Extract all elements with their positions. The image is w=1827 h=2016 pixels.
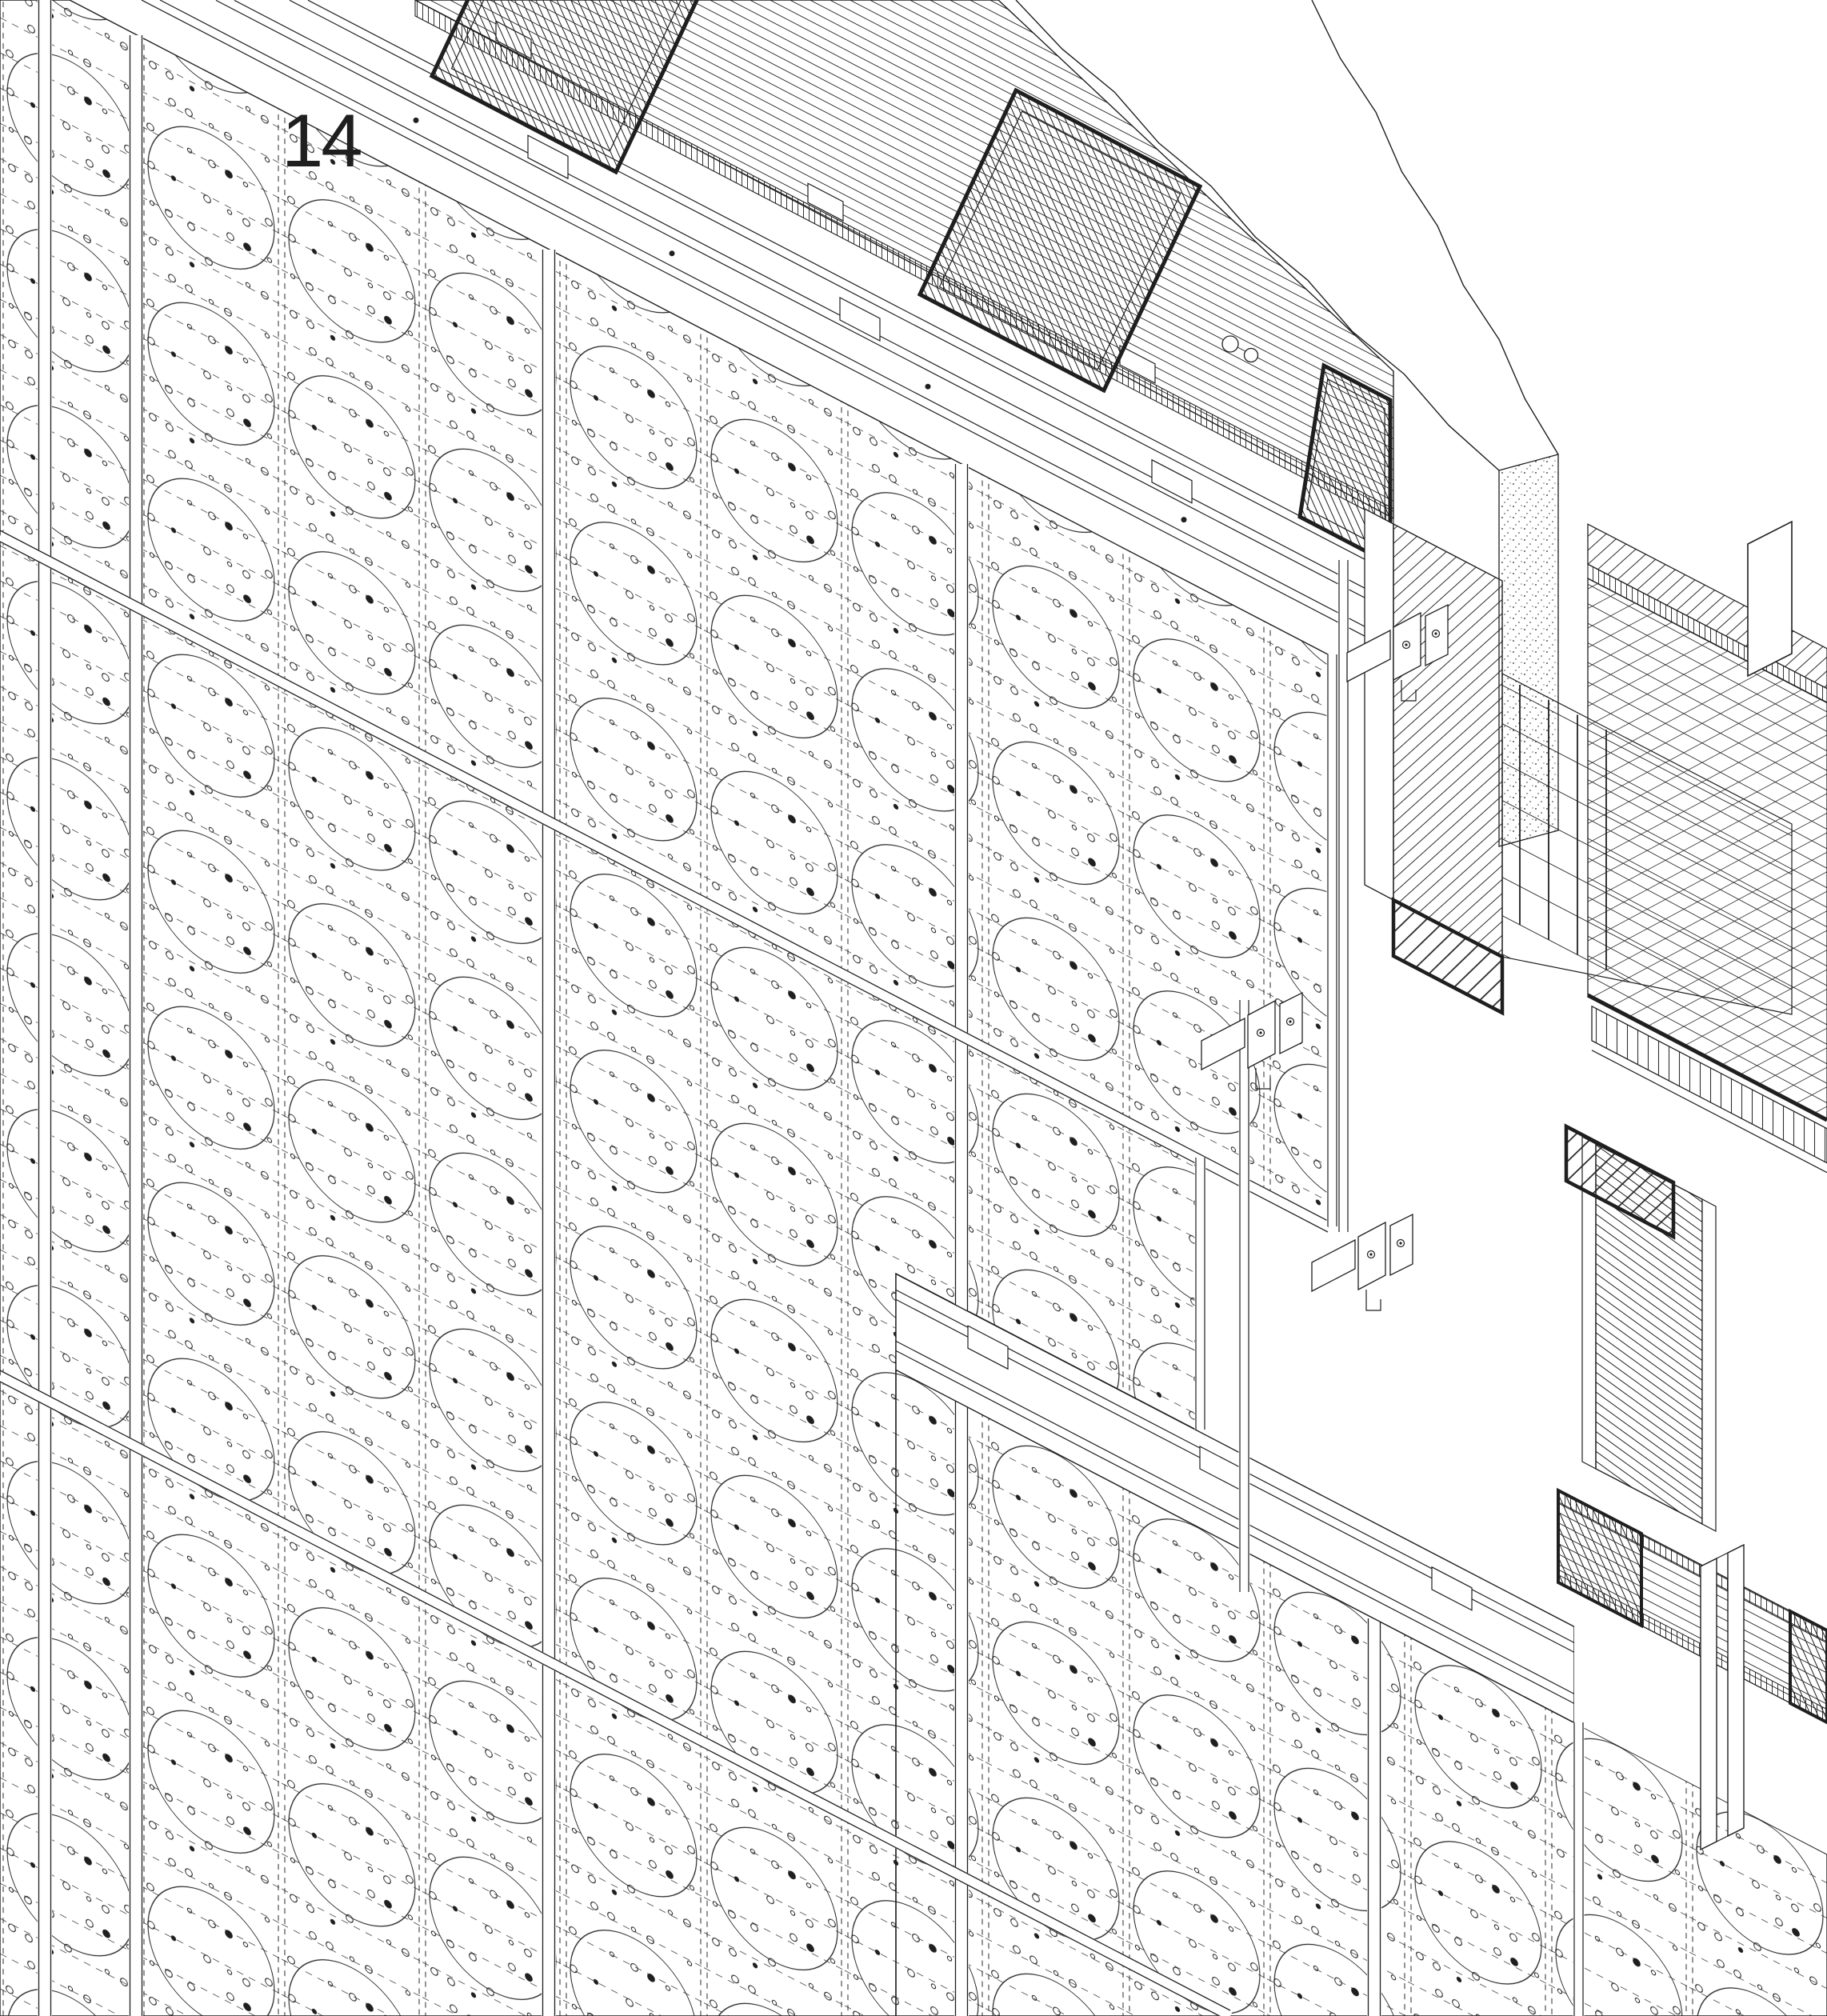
parapet-slab — [1748, 522, 1792, 676]
soffit-lintel — [1558, 1490, 1641, 1626]
soffit-lintel — [1790, 1611, 1827, 1722]
rail-screw — [1181, 517, 1187, 522]
wall-reveal-trim — [1365, 509, 1393, 900]
bracket-part — [1312, 1240, 1355, 1291]
bolt-icon — [1434, 632, 1437, 634]
mullion-channel — [1701, 1558, 1717, 1850]
bracket-hook — [1366, 1290, 1381, 1310]
roof-pipe — [1222, 336, 1238, 352]
bolt-icon — [1405, 643, 1407, 646]
mullion-channel — [1728, 1545, 1744, 1836]
axonometric-facade-detail: 14 — [0, 0, 1827, 2016]
bolt-icon — [1369, 1253, 1372, 1255]
bolt-icon — [1399, 1242, 1401, 1244]
concrete-mast — [1499, 454, 1558, 846]
fixing-bracket — [1312, 1214, 1413, 1310]
bolt-icon — [1259, 1031, 1261, 1034]
drawing-layers — [0, 0, 1827, 2016]
figure-label: 14 — [282, 98, 361, 182]
roof-pipe — [1245, 349, 1258, 362]
rail-screw — [925, 384, 931, 390]
detail-drawing-canvas: 14 — [0, 0, 1827, 2016]
bolt-icon — [1289, 1020, 1291, 1022]
rail-screw — [670, 250, 675, 256]
wall-section-reveal — [1393, 524, 1502, 957]
window-jamb-trim — [1702, 1199, 1716, 1531]
rail-screw — [414, 118, 419, 123]
